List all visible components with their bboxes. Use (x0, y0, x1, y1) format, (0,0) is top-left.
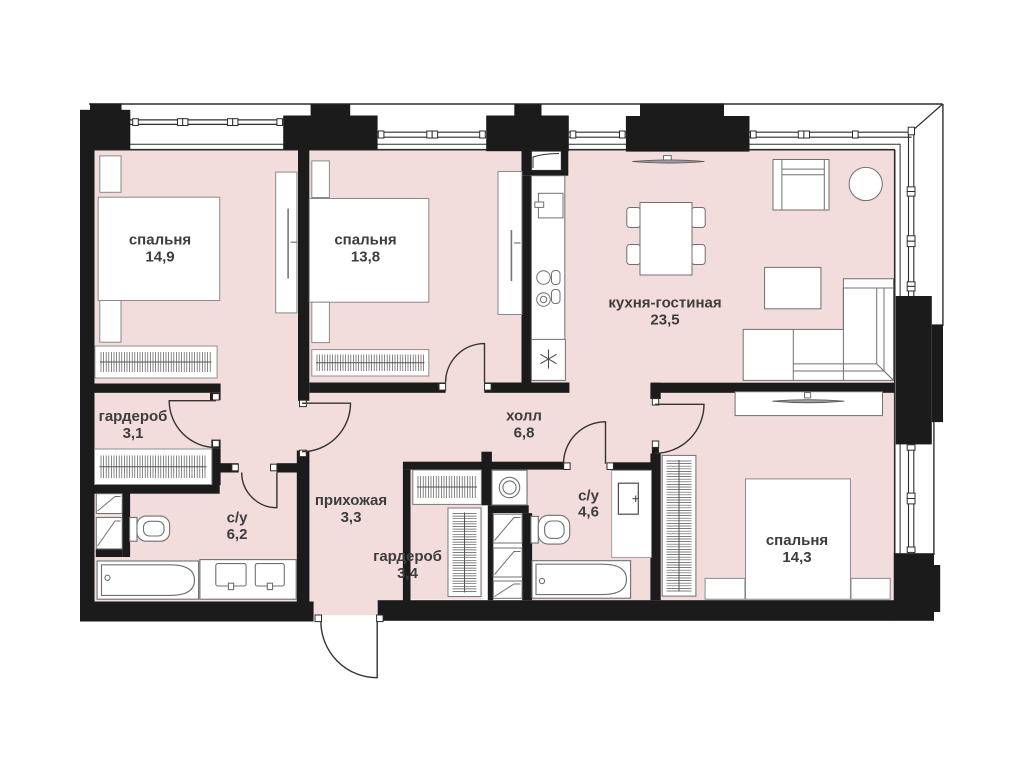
svg-text:холл: холл (506, 408, 542, 425)
svg-text:гардероб: гардероб (99, 408, 168, 425)
svg-text:прихожая: прихожая (315, 492, 387, 509)
svg-text:спальня: спальня (129, 232, 191, 249)
svg-text:спальня: спальня (766, 532, 828, 549)
svg-text:6,8: 6,8 (514, 425, 535, 442)
svg-text:14,3: 14,3 (782, 549, 811, 566)
svg-text:кухня-гостиная: кухня-гостиная (608, 295, 721, 312)
svg-text:с/у: с/у (578, 488, 600, 505)
svg-text:6,2: 6,2 (227, 526, 248, 543)
svg-text:23,5: 23,5 (650, 312, 679, 329)
svg-text:гардероб: гардероб (373, 548, 442, 565)
svg-text:спальня: спальня (334, 232, 396, 249)
svg-text:3,1: 3,1 (123, 425, 144, 442)
svg-text:14,9: 14,9 (145, 249, 174, 266)
svg-text:4,6: 4,6 (578, 504, 599, 521)
svg-text:3,4: 3,4 (397, 565, 419, 582)
svg-text:13,8: 13,8 (351, 249, 380, 266)
svg-text:с/у: с/у (227, 510, 249, 527)
svg-text:3,3: 3,3 (341, 509, 362, 526)
